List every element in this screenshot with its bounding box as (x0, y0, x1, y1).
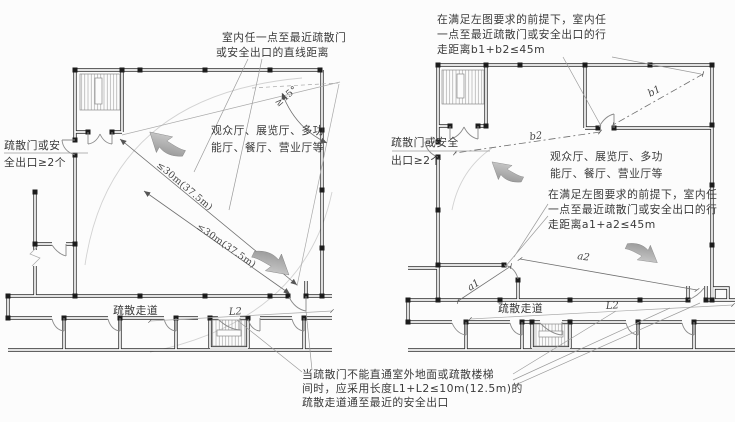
left-top-note-line-1: 室内任一点至最近疏散门 (222, 30, 346, 44)
arrow-to-stair-exit (486, 154, 526, 192)
right-mid-note-line-2: 一点至最近疏散门或安全出口的行 (548, 202, 717, 216)
right-room-label-line-1: 观众厅、展览厅、多功 (550, 149, 663, 163)
right-mid-note-line-1: 在满足左图要求的前提下，室内任 (548, 187, 717, 201)
left-top-note-line-2: 或安全出口的直线距离 (216, 45, 329, 59)
bottom-note-line-1: 当疏散门不能直通室外地面或疏散楼梯 (302, 367, 494, 381)
break-line (30, 246, 40, 266)
distance-label-1: ≤30m(37.5m) (154, 160, 215, 213)
right-room-label-line-2: 能厅、餐厅、营业厅等 (550, 166, 663, 180)
right-exit-note-line-2: 出口≥2个 (391, 153, 442, 167)
leader-lines (4, 59, 312, 372)
bottom-note-line-3: 疏散走道通至最近的安全出口 (302, 395, 449, 409)
arrow-to-stair-exit (142, 123, 187, 167)
right-top-note-line-2: 一点至最近疏散门或安全出口的行 (437, 27, 606, 41)
right-top-note-line-3: 走距离b1+b2≤45m (437, 42, 545, 56)
a1-label: a1 (466, 278, 482, 294)
angle-label: ≥45° (273, 84, 300, 109)
stair-top-left (80, 74, 120, 110)
right-mid-note-line-3: 走距离a1+a2≤45m (548, 217, 656, 231)
a2-label: a2 (577, 251, 591, 264)
right-floor-plan: 在满足左图要求的前提下，室内任 一点至最近疏散门或安全出口的行 走距离b1+b2… (391, 12, 735, 386)
left-floor-plan: 室内任一点至最近疏散门 或安全出口的直线距离 疏散门或安 全出口≥2个 观众厅、… (4, 30, 346, 372)
stair-bottom (534, 324, 568, 346)
right-plan-labels: 在满足左图要求的前提下，室内任 一点至最近疏散门或安全出口的行 走距离b1+b2… (391, 12, 717, 315)
left-room-label-line-2: 能厅、餐厅、营业厅等 (211, 140, 324, 154)
right-corridor-label: 疏散走道 (498, 301, 543, 315)
bottom-note-line-2: 间时，应采用长度L1+L2≤10m(12.5m)的 (302, 381, 523, 395)
left-room-label-line-1: 观众厅、展览厅、多功 (211, 123, 324, 137)
right-top-note-line-1: 在满足左图要求的前提下，室内任 (437, 12, 606, 26)
left-corridor-label: 疏散走道 (113, 303, 158, 317)
b2-label: b2 (529, 130, 543, 143)
b1-label: b1 (646, 84, 662, 100)
stair-top-left (442, 70, 484, 104)
left-plan-labels: 室内任一点至最近疏散门 或安全出口的直线距离 疏散门或安 全出口≥2个 观众厅、… (4, 30, 346, 318)
stair-bottom (212, 320, 246, 346)
right-exit-note-line-1: 疏散门或安全 (391, 135, 459, 149)
left-exit-note-line-1: 疏散门或安 (4, 138, 60, 152)
evacuation-diagram: 室内任一点至最近疏散门 或安全出口的直线距离 疏散门或安 全出口≥2个 观众厅、… (0, 0, 735, 422)
left-l2-label: L2 (228, 306, 243, 318)
left-exit-note-line-2: 全出口≥2个 (4, 155, 66, 169)
doors (52, 132, 306, 331)
arrow-to-corridor-exit (623, 233, 663, 270)
travel-radius-arcs (452, 148, 492, 210)
distance-label-2: ≤30m(37.5m) (194, 221, 258, 270)
right-l2-label: L2 (605, 300, 620, 312)
bottom-note: 当疏散门不能直通室外地面或疏散楼梯 间时，应采用长度L1+L2≤10m(12.5… (302, 367, 523, 409)
